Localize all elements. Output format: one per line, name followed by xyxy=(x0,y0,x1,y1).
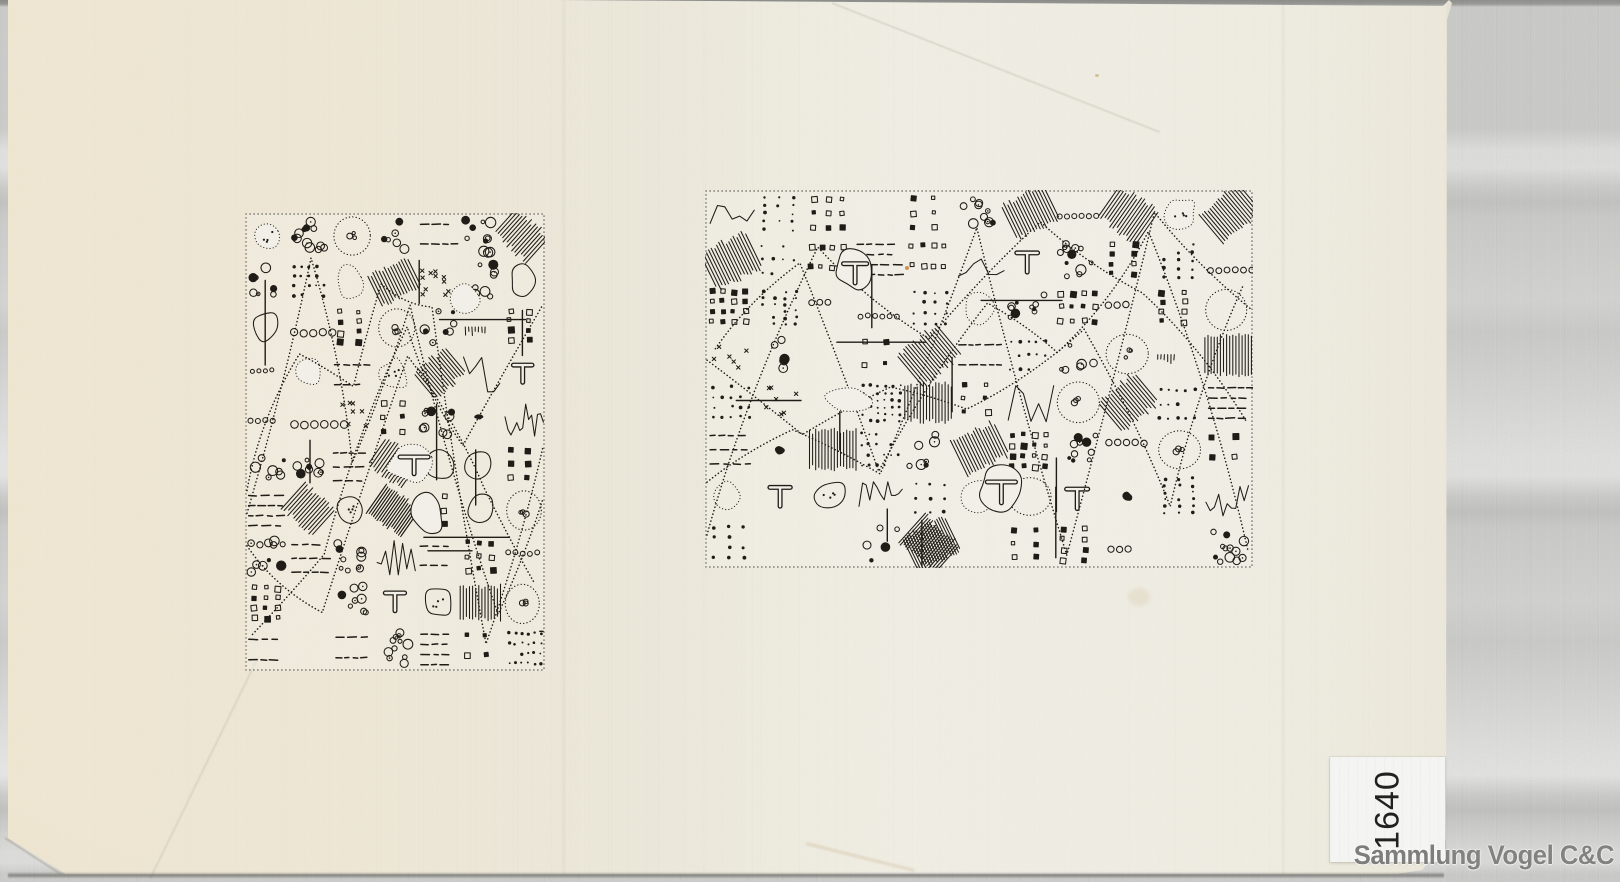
ink-speck-orange xyxy=(905,266,909,270)
ink-drawing-right xyxy=(705,190,1253,568)
ink-drawing-left xyxy=(245,213,545,671)
paper-speck xyxy=(1095,74,1099,77)
paper-stain xyxy=(1128,588,1150,606)
paper-edge-shadow xyxy=(8,872,1444,878)
collection-watermark: Sammlung Vogel C&C xyxy=(1354,840,1614,871)
inventory-number: 1640 xyxy=(1368,770,1407,850)
artwork-scan: 1640 Sammlung Vogel C&C xyxy=(0,0,1620,882)
